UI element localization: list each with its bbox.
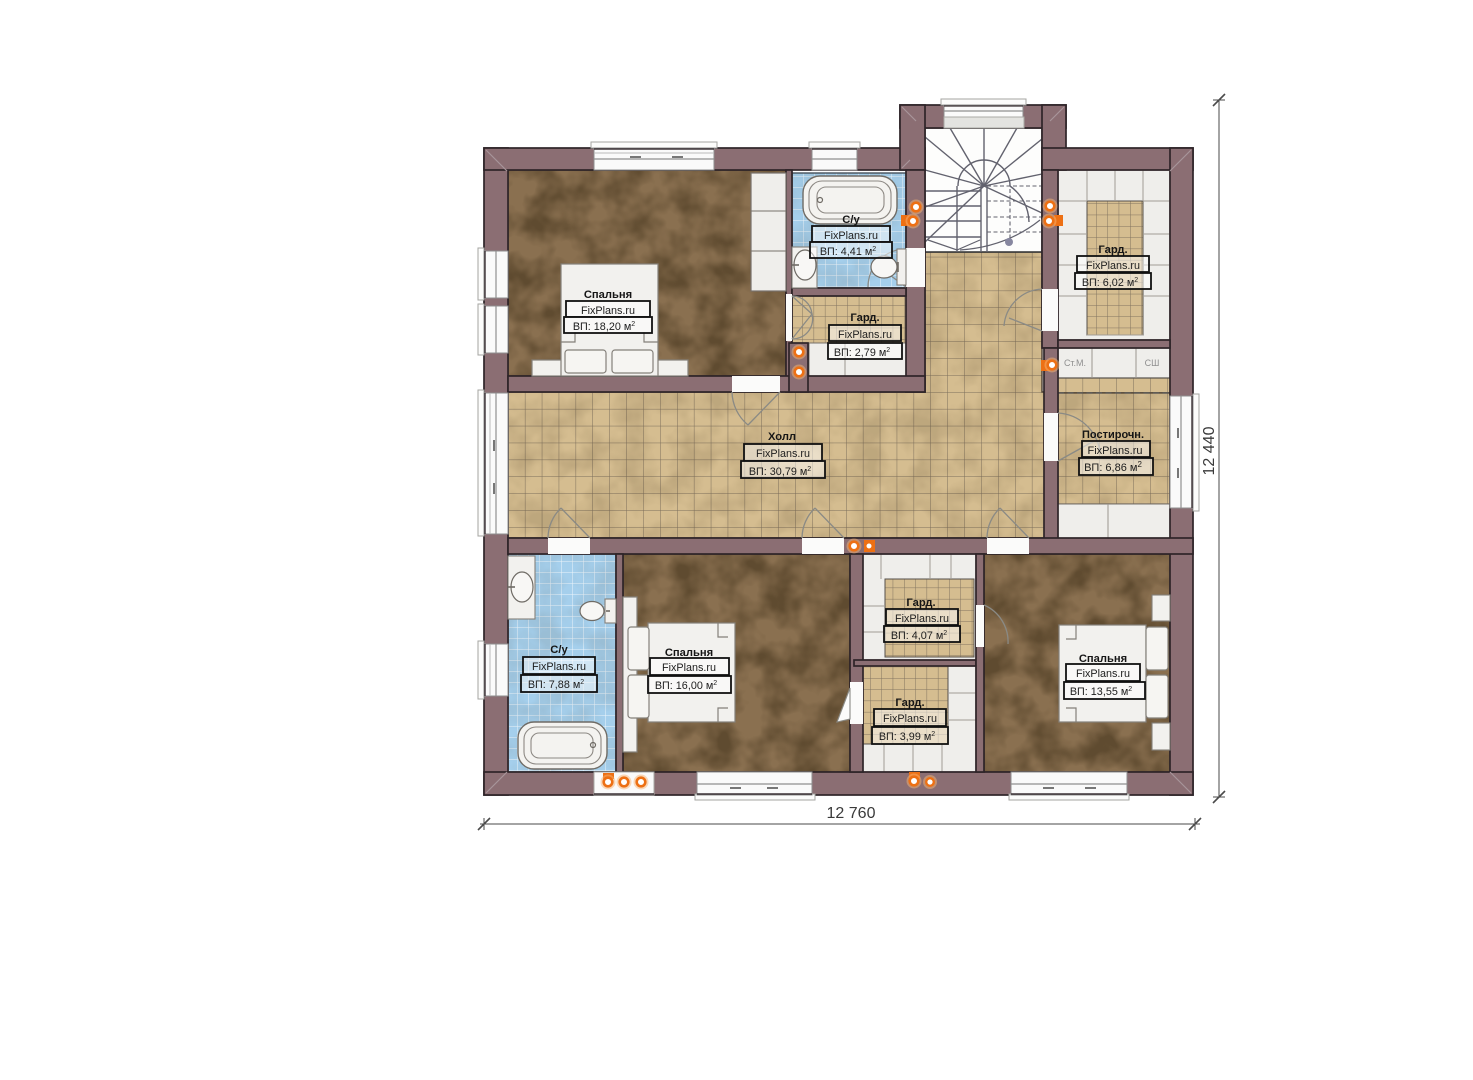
- svg-text:С/у: С/у: [842, 214, 860, 226]
- svg-text:ВП: 18,20 м2: ВП: 18,20 м2: [573, 321, 635, 333]
- svg-text:Гард.: Гард.: [1098, 244, 1127, 256]
- svg-text:ВП: 16,00 м2: ВП: 16,00 м2: [655, 680, 717, 692]
- svg-text:СШ: СШ: [1145, 358, 1160, 368]
- svg-text:С/у: С/у: [550, 644, 568, 656]
- svg-text:FixPlans.ru: FixPlans.ru: [581, 305, 635, 317]
- svg-text:FixPlans.ru: FixPlans.ru: [662, 662, 716, 674]
- svg-text:FixPlans.ru: FixPlans.ru: [883, 713, 937, 725]
- svg-text:12 440: 12 440: [1201, 426, 1218, 475]
- svg-text:Холл: Холл: [768, 431, 796, 443]
- svg-text:ВП: 3,99 м2: ВП: 3,99 м2: [879, 731, 935, 743]
- svg-text:ВП: 2,79 м2: ВП: 2,79 м2: [834, 347, 890, 359]
- svg-text:ВП: 7,88 м2: ВП: 7,88 м2: [528, 679, 584, 691]
- svg-text:Спальня: Спальня: [584, 289, 632, 301]
- svg-text:12 760: 12 760: [827, 805, 876, 822]
- svg-text:ВП: 6,86 м2: ВП: 6,86 м2: [1084, 460, 1142, 474]
- svg-text:ВП: 13,55 м2: ВП: 13,55 м2: [1070, 686, 1132, 698]
- svg-text:FixPlans.ru: FixPlans.ru: [1087, 445, 1142, 457]
- svg-text:ВП: 30,79 м2: ВП: 30,79 м2: [749, 466, 811, 478]
- svg-text:FixPlans.ru: FixPlans.ru: [895, 613, 949, 625]
- svg-text:Постирочн.: Постирочн.: [1082, 429, 1144, 441]
- svg-text:Ст.М.: Ст.М.: [1064, 358, 1086, 368]
- svg-text:Гард.: Гард.: [895, 697, 924, 709]
- svg-text:Гард.: Гард.: [850, 312, 879, 324]
- svg-text:FixPlans.ru: FixPlans.ru: [532, 661, 586, 673]
- svg-text:ВП: 6,02 м2: ВП: 6,02 м2: [1082, 277, 1138, 289]
- svg-text:ВП: 4,07 м2: ВП: 4,07 м2: [891, 630, 947, 642]
- svg-text:FixPlans.ru: FixPlans.ru: [756, 448, 810, 460]
- svg-text:FixPlans.ru: FixPlans.ru: [838, 329, 892, 341]
- svg-text:Гард.: Гард.: [906, 597, 935, 609]
- svg-text:FixPlans.ru: FixPlans.ru: [1076, 668, 1130, 680]
- svg-text:FixPlans.ru: FixPlans.ru: [824, 230, 878, 242]
- svg-text:FixPlans.ru: FixPlans.ru: [1086, 260, 1140, 272]
- svg-text:ВП: 4,41 м2: ВП: 4,41 м2: [820, 246, 876, 258]
